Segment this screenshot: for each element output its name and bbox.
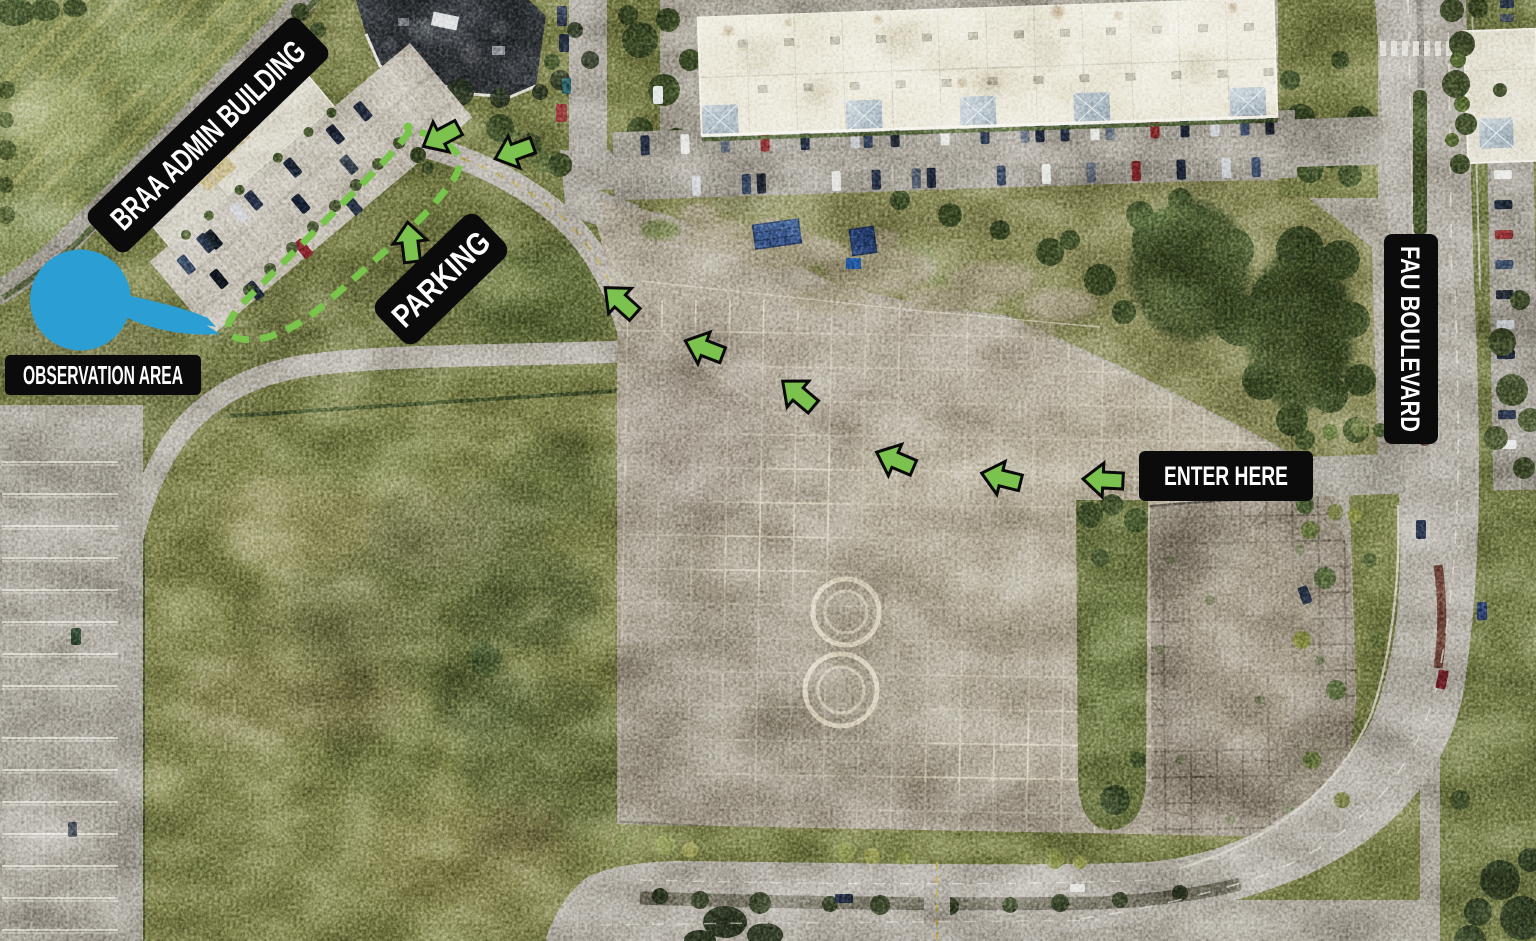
svg-text:FAU BOULEVARD: FAU BOULEVARD: [1395, 246, 1425, 432]
svg-text:ENTER HERE: ENTER HERE: [1164, 461, 1288, 491]
svg-text:OBSERVATION AREA: OBSERVATION AREA: [23, 360, 183, 390]
